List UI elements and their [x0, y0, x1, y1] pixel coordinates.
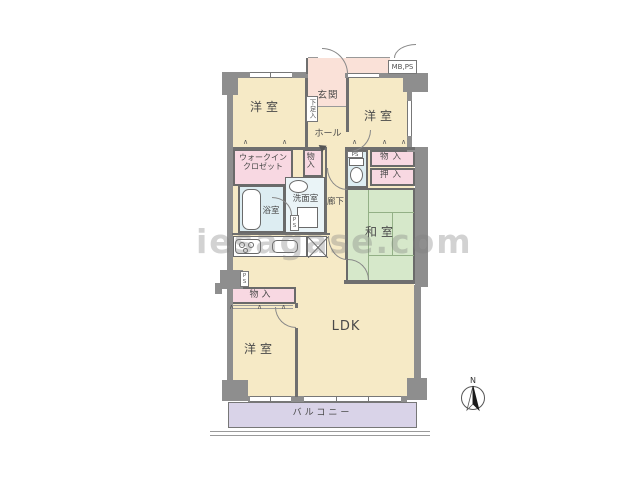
window-tick [368, 396, 369, 402]
outer-wall [414, 285, 421, 380]
window [250, 72, 292, 78]
bathroom-label: 浴室 [258, 207, 284, 217]
floor-plan: MB,PS PS PS PS 下足入 [0, 0, 640, 480]
window [407, 101, 412, 136]
closet-hanger-mark: ∧ [257, 304, 262, 311]
interior-wall [306, 58, 308, 74]
interior-wall [233, 147, 327, 150]
washbasin-icon [289, 180, 308, 193]
entrance-label: 玄関 [311, 91, 345, 102]
window-tick [270, 396, 271, 402]
window [348, 73, 379, 78]
site-boundary-line [210, 435, 430, 436]
closet-hanger-mark: ∧ [243, 139, 248, 146]
site-boundary-line [210, 431, 430, 432]
interior-wall [295, 328, 298, 397]
window [304, 396, 401, 402]
porch-edge [346, 57, 390, 58]
closet-hanger-mark: ∧ [352, 139, 357, 146]
walk-in-closet-label: ウォークイン クロゼット [236, 153, 290, 171]
window-tick [270, 72, 271, 78]
room-bedroom-bottom-left-label: 洋室 [234, 343, 286, 357]
door-arc-meter-box [394, 44, 416, 58]
window-tick [336, 396, 337, 402]
pillar-notch [215, 283, 222, 294]
room-ldk-label: LDK [321, 320, 371, 335]
closet-hanger-mark: ∧ [401, 139, 406, 146]
toilet-tank-icon [349, 158, 364, 166]
corridor-label: 廊下 [325, 198, 346, 208]
hall-label: ホール [310, 129, 346, 139]
room-bedroom-top-left-label: 洋室 [240, 101, 292, 115]
storage-east-label: 物入 [370, 153, 415, 163]
toilet-bowl-icon [350, 167, 363, 183]
washroom-label: 洗面室 [287, 195, 324, 205]
pipe-space-west: PS [240, 271, 249, 287]
closet-hanger-mark: ∧ [281, 304, 286, 311]
room-bedroom-top-right-label: 洋室 [354, 110, 406, 124]
north-compass-icon: N [457, 376, 489, 422]
compass-graphic [457, 382, 489, 422]
interior-wall [325, 149, 327, 233]
tatami-south-wall [344, 280, 417, 284]
shoe-cabinet-label: 下足入 [307, 99, 317, 119]
closet-hanger-mark: ∧ [282, 139, 287, 146]
balcony-label: バルコニー [228, 408, 417, 418]
storage-bottom-left-label: 物入 [227, 290, 296, 300]
closet-hanger-mark: ∧ [382, 139, 387, 146]
outer-wall [415, 147, 428, 287]
mb-ps-label: MB,PS [392, 63, 414, 71]
closet-hanger-mark: ∧ [229, 304, 234, 311]
storage-hall-label: 物入 [306, 152, 315, 168]
north-label: N [457, 376, 489, 385]
entrance-porch [308, 58, 390, 74]
interior-wall [346, 78, 349, 132]
pipe-space-toilet: PS [347, 151, 363, 158]
pillar [222, 380, 248, 401]
pillar [222, 72, 238, 95]
porch-edge [308, 57, 318, 58]
oshiire-label: 押入 [370, 171, 415, 181]
door-arc-front-door [322, 48, 348, 74]
ps-label: PS [242, 273, 248, 285]
pillar [407, 378, 427, 400]
walk-in-line1: ウォークイン [239, 153, 287, 162]
watermark: iesagase.com [196, 222, 473, 261]
ps-label: PS [352, 152, 359, 158]
walk-in-line2: クロゼット [243, 162, 283, 171]
meter-box: MB,PS [388, 60, 417, 74]
